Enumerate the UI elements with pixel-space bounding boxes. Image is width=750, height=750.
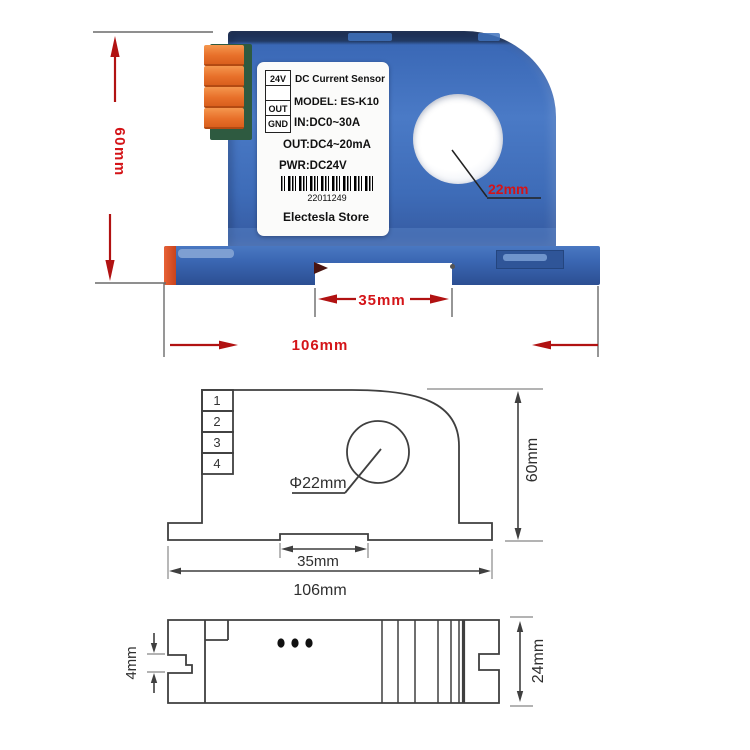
- arrow-up-icon: [517, 621, 523, 632]
- arrow-left-icon: [318, 294, 337, 303]
- dim-label-width-photo: 106mm: [292, 337, 349, 354]
- product-spec-image: 24V OUT GND DC Current Sensor MODEL: ES-…: [0, 0, 750, 750]
- terminal-2: 2: [213, 414, 220, 429]
- photo-dim-height: 60mm: [93, 32, 213, 283]
- arrow-right-icon: [219, 341, 238, 350]
- diagram-overlay: 60mm 22mm 35mm 106mm: [0, 0, 750, 750]
- dim-label-slot-front: 35mm: [297, 553, 339, 570]
- terminal-4: 4: [213, 456, 220, 471]
- top-dim-depth: 24mm: [510, 617, 547, 706]
- arrow-right-icon: [355, 546, 367, 553]
- arrow-up-icon: [151, 673, 157, 683]
- arrow-down-icon: [151, 643, 157, 653]
- top-view-dots: [277, 638, 312, 647]
- dim-label-hole-photo: 22mm: [488, 181, 528, 197]
- dim-label-slot-photo: 35mm: [358, 292, 405, 309]
- arrow-up-icon: [110, 36, 119, 57]
- top-dim-notch: 4mm: [123, 633, 165, 693]
- top-outline: [168, 620, 499, 703]
- arrow-right-icon: [430, 294, 449, 303]
- dim-label-depth-top: 24mm: [530, 639, 547, 683]
- dim-label-width-front: 106mm: [293, 582, 346, 599]
- photo-dim-slot: 35mm: [315, 288, 452, 317]
- dim-label-hole-front: Φ22mm: [289, 475, 346, 492]
- arrow-up-icon: [515, 391, 522, 403]
- arrow-right-icon: [479, 568, 491, 575]
- arrow-left-icon: [532, 341, 551, 350]
- front-dim-slot: 35mm: [280, 543, 368, 570]
- arrow-down-icon: [515, 528, 522, 540]
- dim-label-height-front: 60mm: [524, 438, 541, 482]
- terminal-3: 3: [213, 435, 220, 450]
- dim-label-height-photo: 60mm: [111, 127, 128, 176]
- arrow-down-icon: [517, 691, 523, 702]
- dim-label-notch-top: 4mm: [123, 646, 140, 679]
- arrow-left-icon: [281, 546, 293, 553]
- arrow-left-icon: [169, 568, 181, 575]
- photo-dim-hole: 22mm: [452, 150, 541, 198]
- terminal-1: 1: [213, 393, 220, 408]
- arrow-down-icon: [105, 260, 114, 281]
- top-view-drawing: [168, 620, 499, 703]
